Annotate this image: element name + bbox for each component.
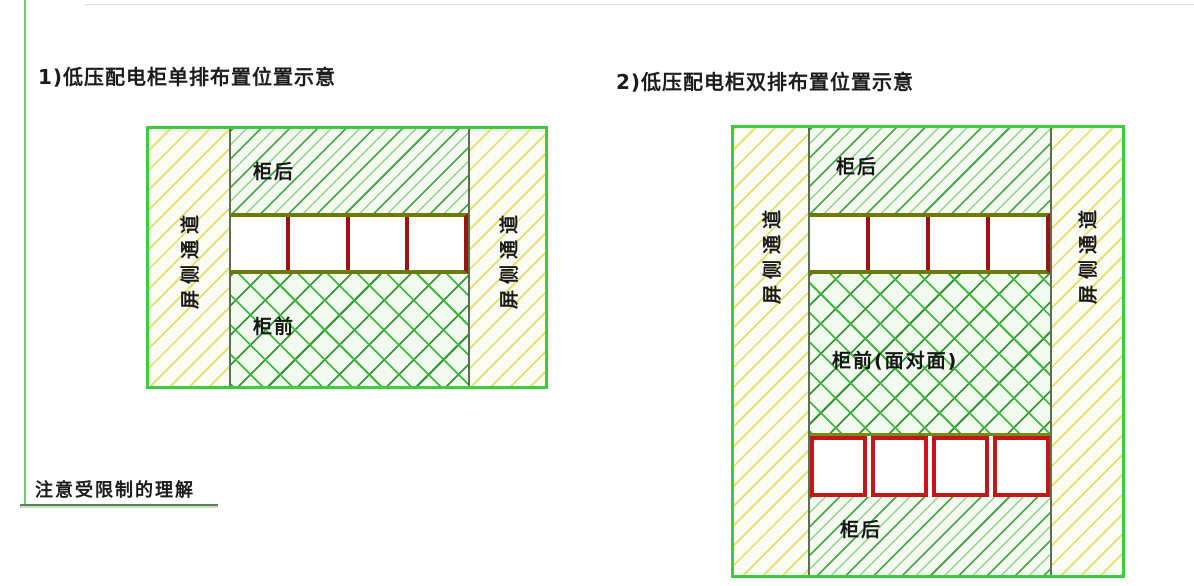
drawing-frame-top-line bbox=[85, 4, 1194, 5]
diagram2-cabinet-row-2 bbox=[810, 433, 1050, 497]
diagram2-behind-cabinet-area-bottom: 柜后 bbox=[810, 497, 1050, 575]
diagram1-title: 1)低压配电柜单排布置位置示意 bbox=[38, 61, 336, 90]
diagram1-cabinet-row bbox=[231, 213, 468, 274]
cabinet-cell bbox=[810, 436, 867, 497]
aisle-label: 屏侧通道 bbox=[1074, 204, 1101, 304]
diagram1-left-aisle: 屏侧通道 bbox=[149, 129, 229, 386]
diagram2-behind-cabinet-area-top: 柜后 bbox=[810, 128, 1050, 213]
diagram1-behind-cabinet-area: 柜后 bbox=[231, 129, 468, 213]
cabinet-cell bbox=[871, 436, 928, 497]
diagram1-right-aisle: 屏侧通道 bbox=[470, 129, 545, 386]
diagram2-middle-column: 柜后 柜前(面对面) 柜后 bbox=[808, 128, 1052, 575]
diagram2-front-face-to-face-area: 柜前(面对面) bbox=[810, 274, 1050, 433]
behind-cabinet-label: 柜后 bbox=[840, 515, 882, 542]
drawing-frame-vertical-line bbox=[24, 0, 26, 506]
diagram2-left-aisle: 屏侧通道 bbox=[734, 128, 808, 575]
diagram1-middle-column: 柜后 柜前 bbox=[229, 129, 470, 386]
diagram2-right-aisle: 屏侧通道 bbox=[1052, 128, 1122, 575]
front-face-to-face-label: 柜前(面对面) bbox=[832, 346, 958, 373]
front-cabinet-label: 柜前 bbox=[253, 312, 295, 339]
diagram2-double-row-layout: 屏侧通道 柜后 柜前(面对面) 柜后 屏侧通道 bbox=[731, 125, 1125, 578]
aisle-label: 屏侧通道 bbox=[176, 209, 203, 309]
cad-drawing-canvas: 1)低压配电柜单排布置位置示意 2)低压配电柜双排布置位置示意 屏侧通道 柜后 … bbox=[0, 0, 1194, 586]
cabinet-cell bbox=[986, 217, 1046, 270]
diagram1-front-cabinet-area: 柜前 bbox=[231, 274, 468, 386]
cabinet-cell bbox=[866, 217, 926, 270]
cabinet-cell bbox=[286, 217, 345, 270]
bottom-note-underline bbox=[20, 504, 218, 506]
diagram1-single-row-layout: 屏侧通道 柜后 柜前 屏侧通道 bbox=[146, 126, 548, 389]
aisle-label: 屏侧通道 bbox=[758, 204, 785, 304]
behind-cabinet-label: 柜后 bbox=[836, 152, 878, 179]
bottom-note: 注意受限制的理解 bbox=[35, 476, 195, 502]
cabinet-cell bbox=[926, 217, 986, 270]
cabinet-cell bbox=[932, 436, 989, 497]
diagram2-cabinet-row-1 bbox=[810, 213, 1050, 274]
cabinet-cell bbox=[231, 217, 286, 270]
cabinet-cell bbox=[405, 217, 464, 270]
aisle-label: 屏侧通道 bbox=[494, 209, 521, 309]
cabinet-cell bbox=[993, 436, 1050, 497]
diagram2-title: 2)低压配电柜双排布置位置示意 bbox=[616, 66, 914, 95]
cabinet-cell bbox=[810, 217, 866, 270]
behind-cabinet-label: 柜后 bbox=[253, 157, 295, 184]
cabinet-cell bbox=[346, 217, 405, 270]
